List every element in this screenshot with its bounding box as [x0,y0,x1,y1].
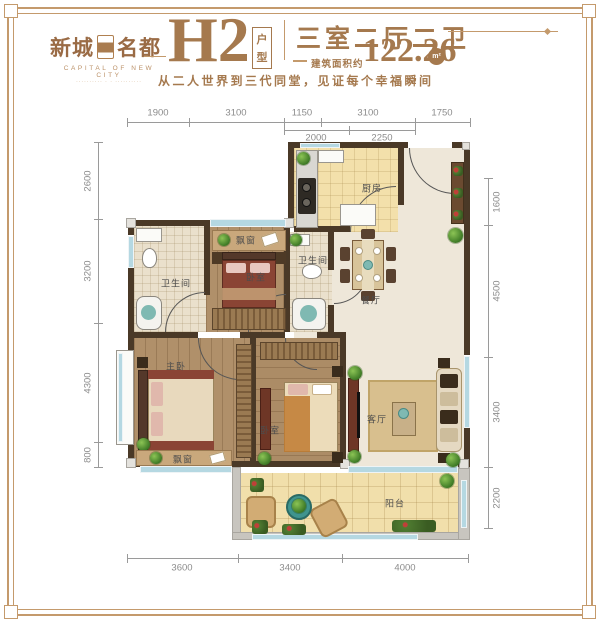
slogan: 从二人世界到三代同堂，见证每个幸福瞬间 [158,72,434,89]
center-bowl [363,260,373,270]
bed-runner [148,441,214,450]
plant-icon [150,452,162,464]
bathroom1-window [128,236,134,268]
pillow [312,384,332,395]
nightstand [276,252,286,264]
bathtub-basin [141,305,156,320]
dim-tick [189,118,190,127]
dim-tick [470,118,471,127]
plate [355,274,363,282]
dim-tick [94,142,103,143]
kitchen-sink [318,150,344,163]
balcony-wall [232,467,241,540]
bed-runner [222,288,276,300]
column [126,218,136,228]
wall [398,148,404,205]
dim-tick [238,554,239,563]
wall [328,232,334,270]
dimension-label: 4500 [492,280,503,301]
wall [464,142,470,355]
plant-icon [218,234,230,246]
area-unit-badge: m² [428,48,445,65]
dimension-label: 1600 [492,191,503,212]
dining-chair [386,247,396,261]
toilet [142,248,157,268]
dim-tick [484,467,493,468]
dim-tick [94,219,103,220]
dim-tick [127,554,128,563]
kitchen-table [340,204,376,226]
dimension-label: 3400 [492,401,503,422]
dining-chair [340,247,350,261]
dim-line-left [98,142,99,467]
dimension-label: 3600 [171,563,192,574]
nightstand [332,366,343,377]
wall [240,332,285,338]
pillow [226,263,246,273]
frame-corner-ornament [4,605,18,619]
dimension-label: 800 [83,447,94,463]
flower-pot-icon [453,188,463,198]
dim-tick [468,554,469,563]
dining-chair [386,269,396,283]
brand-name-left: 新城 [50,32,94,62]
frame-corner-ornament [582,4,596,18]
frame-corner-ornament [582,605,596,619]
living-window [464,356,470,428]
sofa-cushion [440,374,458,388]
dim-tick [484,357,493,358]
sofa-cushion [440,428,458,442]
plant-icon [440,474,454,488]
bedroom2-cabinet [260,388,271,450]
room-label-bathroom1: 卫生间 [161,277,191,290]
brand-seal-icon [97,35,114,59]
flower-planter-icon [392,520,436,532]
room-label-kitchen: 厨房 [362,182,382,195]
room-label-bay-window2: 飘窗 [173,453,193,466]
dim-tick [484,528,493,529]
frame-corner-ornament [4,4,18,18]
plant-icon [292,499,306,513]
dim-tick [94,323,103,324]
dim-tick [484,225,493,226]
sofa-cushion [440,410,458,424]
brand-subtitle: CAPITAL OF NEW CITY [50,65,168,79]
room-label-bay-window1: 飘窗 [236,234,256,247]
plant-icon [258,452,271,465]
bedroom1-wardrobe [212,308,286,330]
dim-tick [349,126,350,135]
dining-chair [361,229,375,239]
balcony-sliding-door [348,466,458,473]
brand-name-right: 名都 [117,32,161,62]
plan-type-char: 户 [257,31,268,47]
tray [398,408,409,419]
wall [340,338,346,463]
header-divider-vertical [284,20,285,60]
shower-basin [300,305,317,322]
nightstand [212,252,222,264]
plant-icon [348,366,362,380]
brand-decor-line: ·········· · · ·········· [50,79,168,85]
room-label-master: 主卧 [166,360,186,373]
plate [373,274,381,282]
flower-pot-icon [250,478,264,492]
stove-burner [302,198,311,207]
master-wardrobe [236,344,252,458]
room-label-bathroom2: 卫生间 [298,254,328,267]
flower-pot-icon [252,520,268,534]
flower-pot-icon [453,210,463,220]
dim-tick [321,118,322,127]
plan-type-box: 户 型 [252,27,272,69]
wall [128,220,210,226]
plant-icon [448,228,463,243]
dimension-label: 1900 [147,108,168,119]
column [462,142,470,150]
bed-blanket [284,396,310,452]
plan-type-char: 型 [257,49,268,65]
dimension-label: 1750 [431,108,452,119]
dimension-label: 4300 [83,372,94,393]
dim-tick [415,126,416,135]
plan-code: H2 [168,8,250,72]
tv-screen [357,392,360,438]
balcony-side-window [461,480,467,528]
flower-planter-icon [282,524,306,535]
dim-tick [94,442,103,443]
dimension-label: 3100 [357,108,378,119]
nightstand [137,357,148,368]
dimension-label: 1150 [292,108,312,119]
kitchen-window [300,143,340,148]
nightstand [332,452,343,463]
dim-line-bottom [127,558,468,559]
plate [355,247,363,255]
dimension-label: 3400 [279,563,300,574]
pillow [151,382,163,406]
dim-line-top [127,122,470,123]
wall [288,148,294,226]
brand-logo: 新城 名都 CAPITAL OF NEW CITY ·········· · ·… [50,32,168,85]
room-label-dining: 餐厅 [361,294,381,307]
plant-icon [297,152,310,165]
master-bottom-window [140,466,232,473]
wall [328,305,334,332]
plant-icon [290,234,302,246]
bathroom1-vanity [136,228,162,242]
column [126,458,136,468]
bedroom2-wardrobe [260,342,338,360]
room-label-bedroom1: 卧室 [246,271,266,284]
dimension-label: 3200 [83,260,94,281]
dimension-label: 3100 [225,108,246,119]
dim-tick [284,126,285,135]
plant-icon [348,450,361,463]
dim-tick [342,554,343,563]
wall [134,332,198,338]
header-divider-right [448,31,558,32]
dining-chair [340,269,350,283]
pillow [151,412,163,436]
bedroom1-bay-window [210,219,286,227]
area-label: 建筑面积约 [311,56,364,70]
side-table [438,358,450,368]
area-dash [293,60,307,62]
pillow [288,384,308,395]
dimension-label: 2600 [83,170,94,191]
balcony-window [252,534,418,540]
bedroom1-headboard [222,252,276,260]
dimension-label: 4000 [394,563,415,574]
plate [373,247,381,255]
room-label-bedroom2: 卧室 [260,424,280,437]
wall [204,226,210,295]
room-label-balcony: 阳台 [385,497,405,510]
column [459,459,469,469]
dim-tick [127,118,128,127]
flower-pot-icon [453,166,463,176]
room-label-living: 客厅 [367,413,387,426]
dim-tick [484,178,493,179]
header-divider-left [144,56,166,57]
dim-line-right [488,178,489,528]
plant-icon [446,453,460,467]
dim-tick [94,467,103,468]
stove-burner [302,183,311,192]
dimension-label: 2200 [492,487,503,508]
sofa-cushion [440,392,458,406]
master-bay-window [118,353,123,442]
